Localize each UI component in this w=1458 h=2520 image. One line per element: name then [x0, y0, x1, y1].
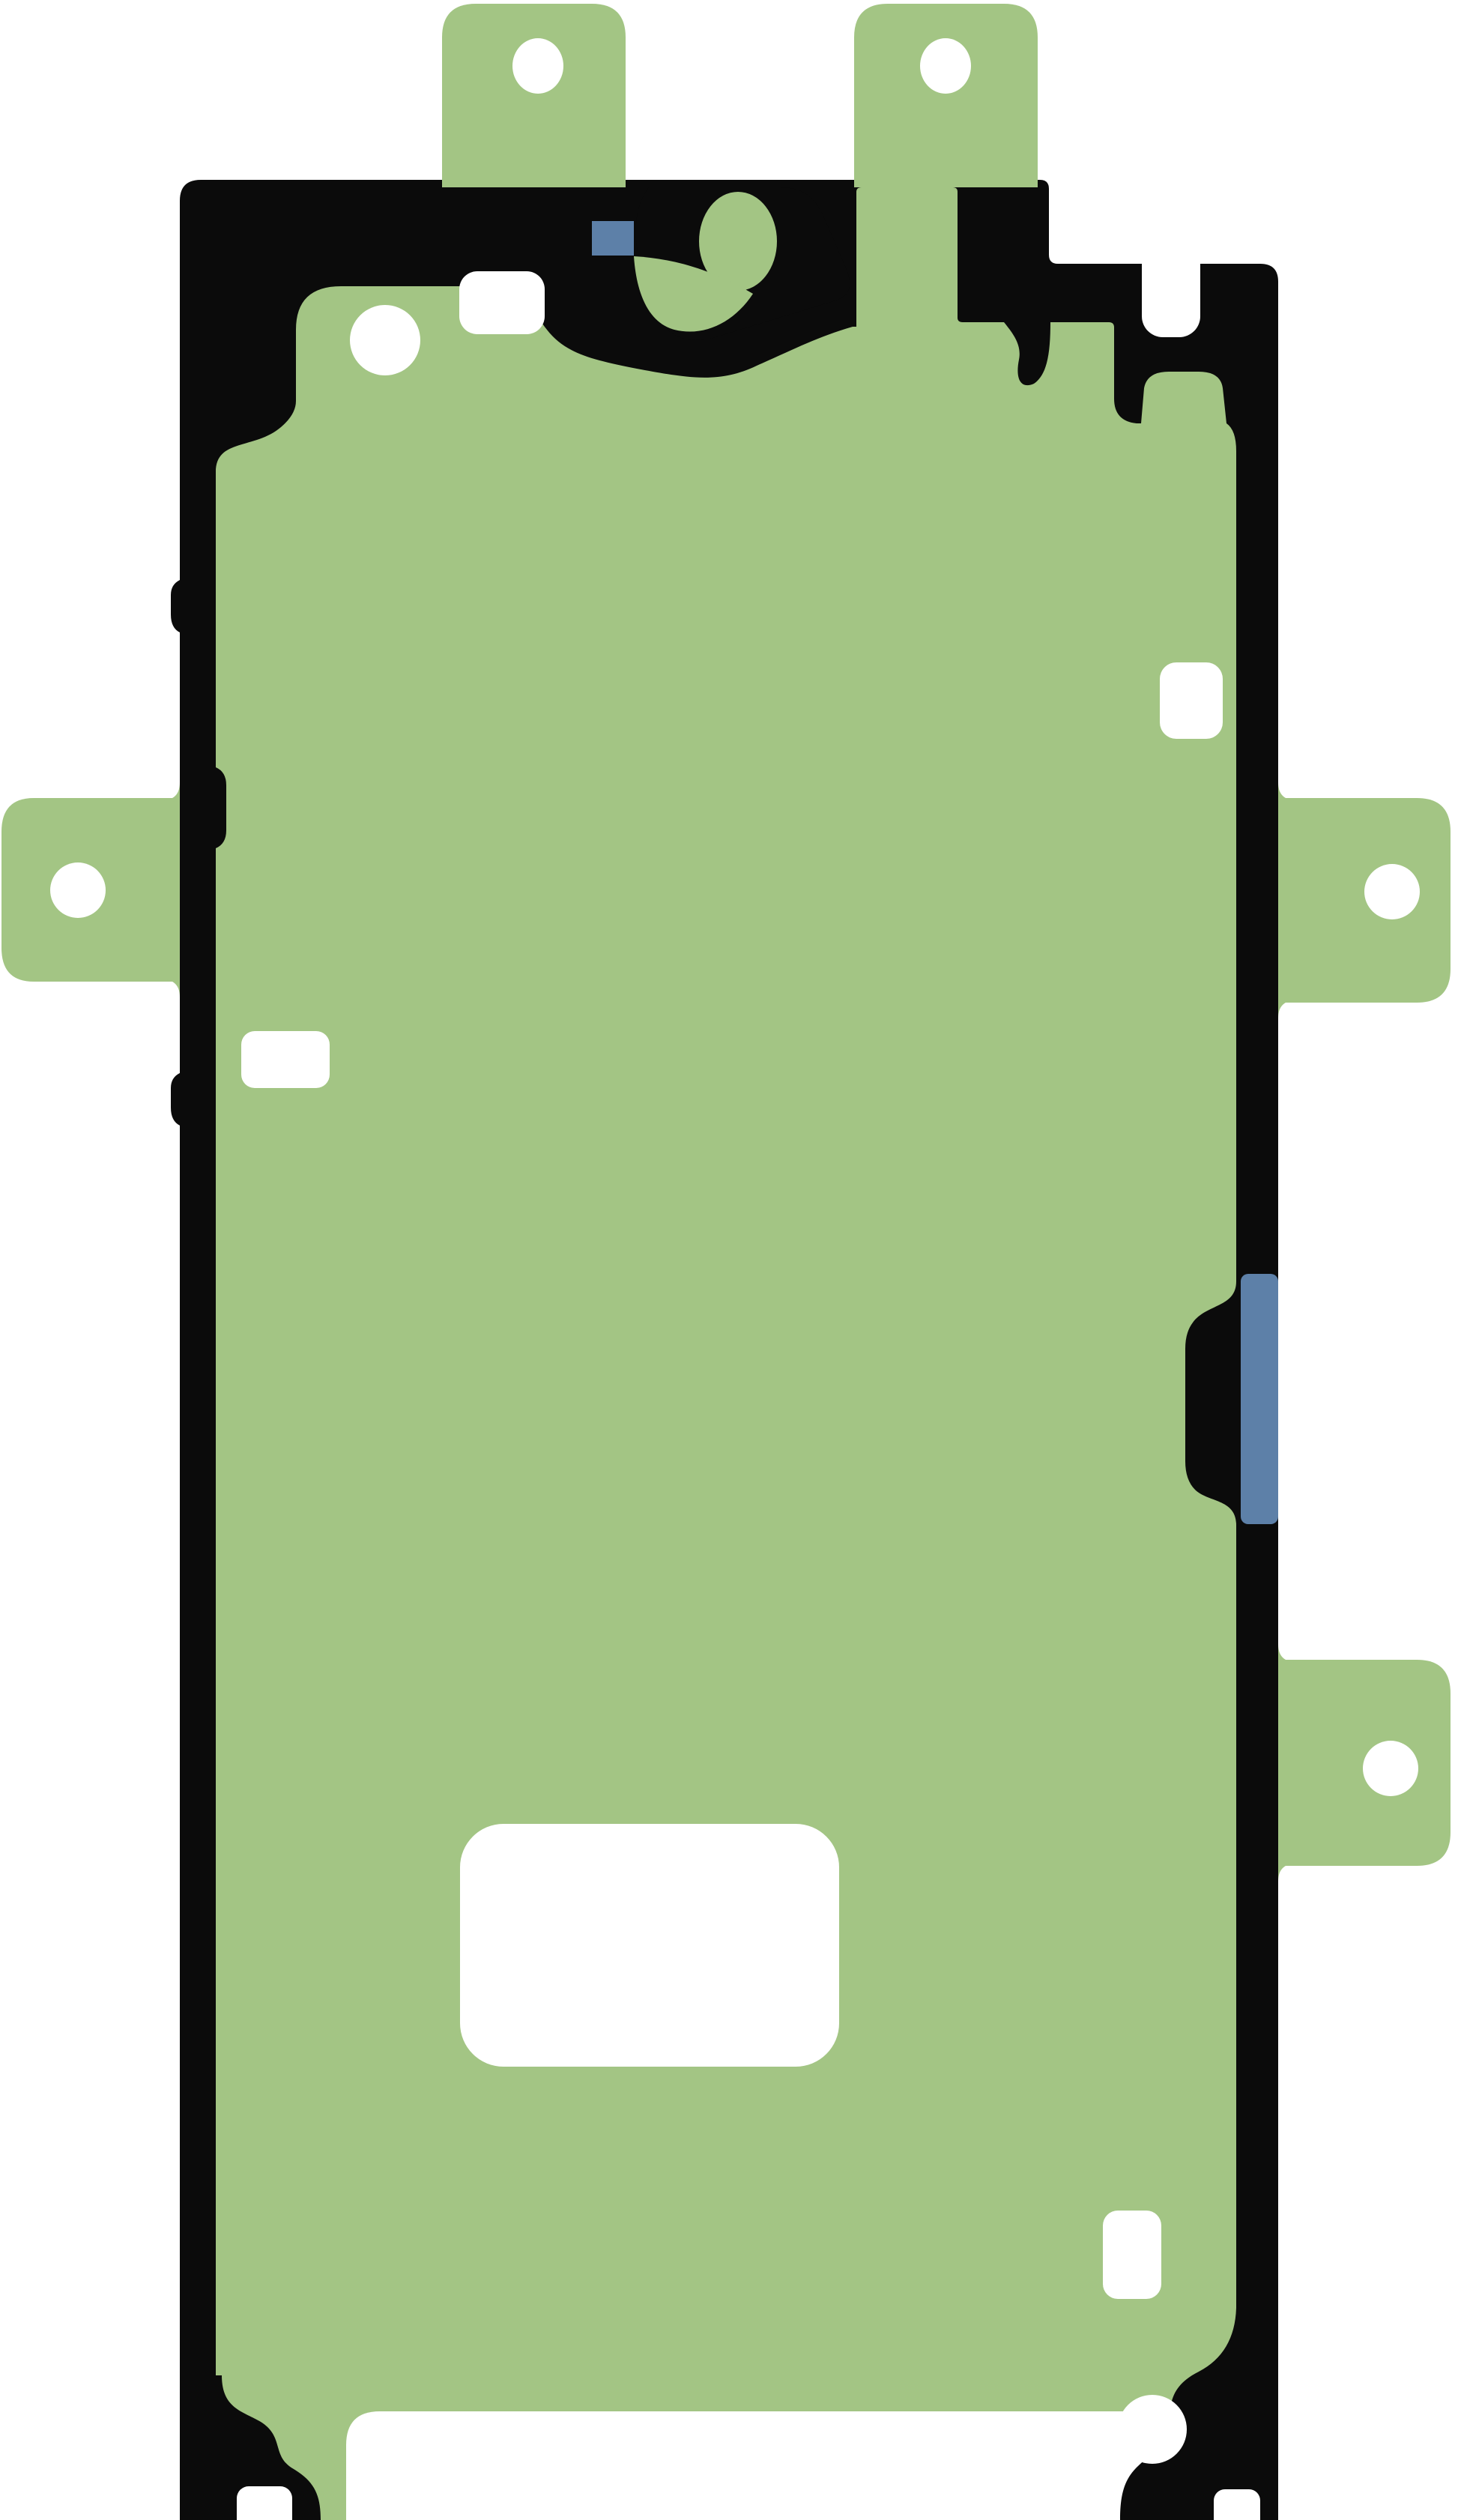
right-lower-tab-hole [1363, 1741, 1418, 1796]
left-tab-hole [50, 862, 106, 918]
opening-bottom-center-large [460, 1824, 839, 2067]
opening-right-mid [1160, 662, 1223, 739]
bottom-right-die-cut-bulb [1118, 2395, 1187, 2464]
bottom-left-edge-notch [237, 2486, 292, 2520]
sensor-hole-top-left [350, 305, 420, 375]
right-edge-liner-mark [1241, 1274, 1278, 1524]
top-right-pull-tab [854, 4, 1038, 187]
top-liner-mark [592, 221, 634, 256]
right-upper-tab-hole [1364, 864, 1420, 919]
product-image-canvas [0, 0, 1458, 2520]
opening-left-mid [241, 1031, 330, 1088]
top-left-tab-hole [512, 38, 563, 94]
top-right-tab-hole [920, 38, 971, 94]
opening-top-right [1142, 238, 1200, 337]
opening-top-left [459, 271, 545, 334]
right-upper-pull-tab [1278, 798, 1451, 1003]
adhesive-interior [216, 187, 1236, 2520]
bottom-right-edge-notch [1214, 2489, 1260, 2520]
top-left-pull-tab [442, 4, 626, 187]
bottom-opening-band [346, 2411, 1178, 2520]
opening-bottom-small [1103, 2211, 1161, 2299]
adhesive-sticker-illustration [0, 0, 1458, 2520]
